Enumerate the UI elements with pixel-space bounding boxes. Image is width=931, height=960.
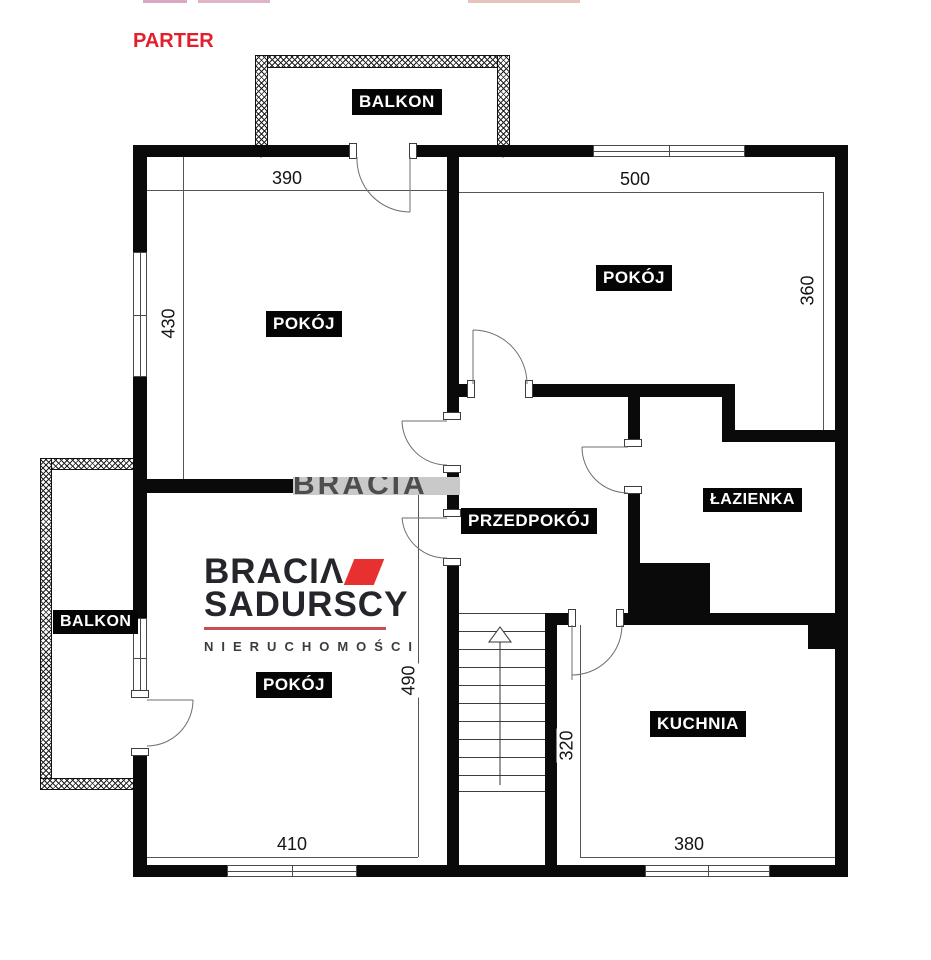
floorplan-canvas: PARTER BALKON BALKON (0, 0, 931, 960)
dimension-label: 430 (159, 306, 180, 340)
dimension-label: 410 (275, 834, 309, 855)
room-label-przedpokoj: PRZEDPOKÓJ (461, 508, 597, 534)
room-label-pokoj-top-left: POKÓJ (266, 311, 342, 337)
agency-logo: BRACIΛ SADURSCY NIERUCHOMOŚCI (204, 556, 420, 654)
logo-wordmark-line1: BRACIΛ (204, 556, 344, 588)
door-swing-icon (357, 157, 410, 212)
door-swings-overlay (0, 0, 931, 960)
watermark-band: BRACIA (293, 477, 460, 495)
room-label-pokoj-top-right: POKÓJ (596, 265, 672, 291)
logo-divider (204, 627, 386, 630)
room-label-kuchnia: KUCHNIA (650, 711, 746, 737)
logo-flag-icon (344, 559, 385, 585)
logo-wordmark-line2: SADURSCY (204, 588, 420, 622)
door-swing-icon (402, 518, 447, 558)
balcony-top-label: BALKON (352, 89, 442, 115)
door-swing-icon (402, 421, 447, 465)
watermark-text: BRACIA (293, 477, 460, 495)
door-swing-icon (473, 330, 527, 384)
door-swing-icon (582, 447, 628, 493)
logo-wordmark-line3: NIERUCHOMOŚCI (204, 639, 420, 654)
dimension-label: 500 (618, 169, 652, 190)
balcony-left-label: BALKON (53, 610, 138, 634)
dimension-label: 360 (798, 273, 819, 307)
floor-title: PARTER (133, 30, 214, 53)
door-swing-icon (147, 700, 193, 746)
dimension-label: 390 (270, 168, 304, 189)
door-swing-icon (572, 625, 622, 680)
dimension-label: 490 (399, 663, 420, 697)
dimension-label: 320 (557, 728, 578, 762)
stairs-up-arrow-icon (489, 627, 511, 642)
room-label-pokoj-bottom-left: POKÓJ (256, 672, 332, 698)
room-label-lazienka: ŁAZIENKA (703, 488, 802, 512)
dimension-label: 380 (672, 834, 706, 855)
